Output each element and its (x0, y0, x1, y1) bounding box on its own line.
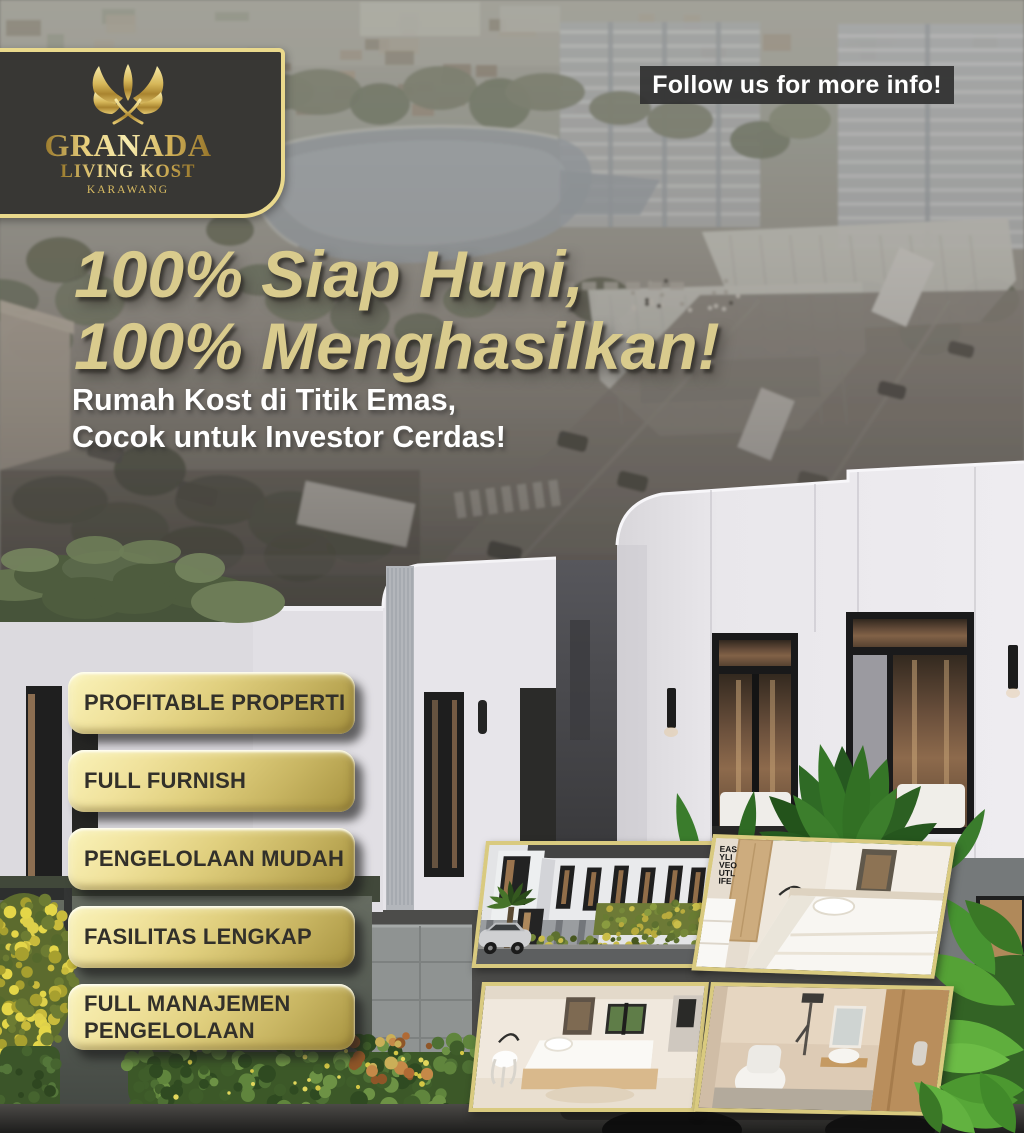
svg-text:LIVING KOST: LIVING KOST (61, 162, 196, 182)
svg-text:GRANADA: GRANADA (44, 127, 211, 163)
svg-text:KARAWANG: KARAWANG (87, 184, 169, 196)
